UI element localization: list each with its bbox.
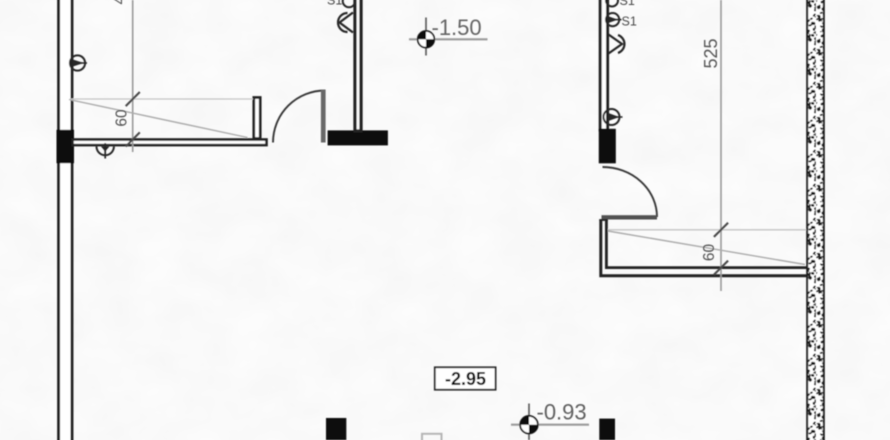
svg-text:-0.93: -0.93 xyxy=(537,400,587,425)
svg-text:-1.50: -1.50 xyxy=(432,15,482,40)
svg-text:-2.95: -2.95 xyxy=(445,369,486,389)
svg-text:S1: S1 xyxy=(327,0,342,8)
svg-text:495: 495 xyxy=(112,0,129,4)
svg-text:60: 60 xyxy=(113,109,130,127)
svg-text:S1: S1 xyxy=(622,15,637,29)
svg-text:60: 60 xyxy=(701,244,718,262)
svg-text:S1: S1 xyxy=(620,0,635,8)
svg-text:525: 525 xyxy=(701,38,721,68)
